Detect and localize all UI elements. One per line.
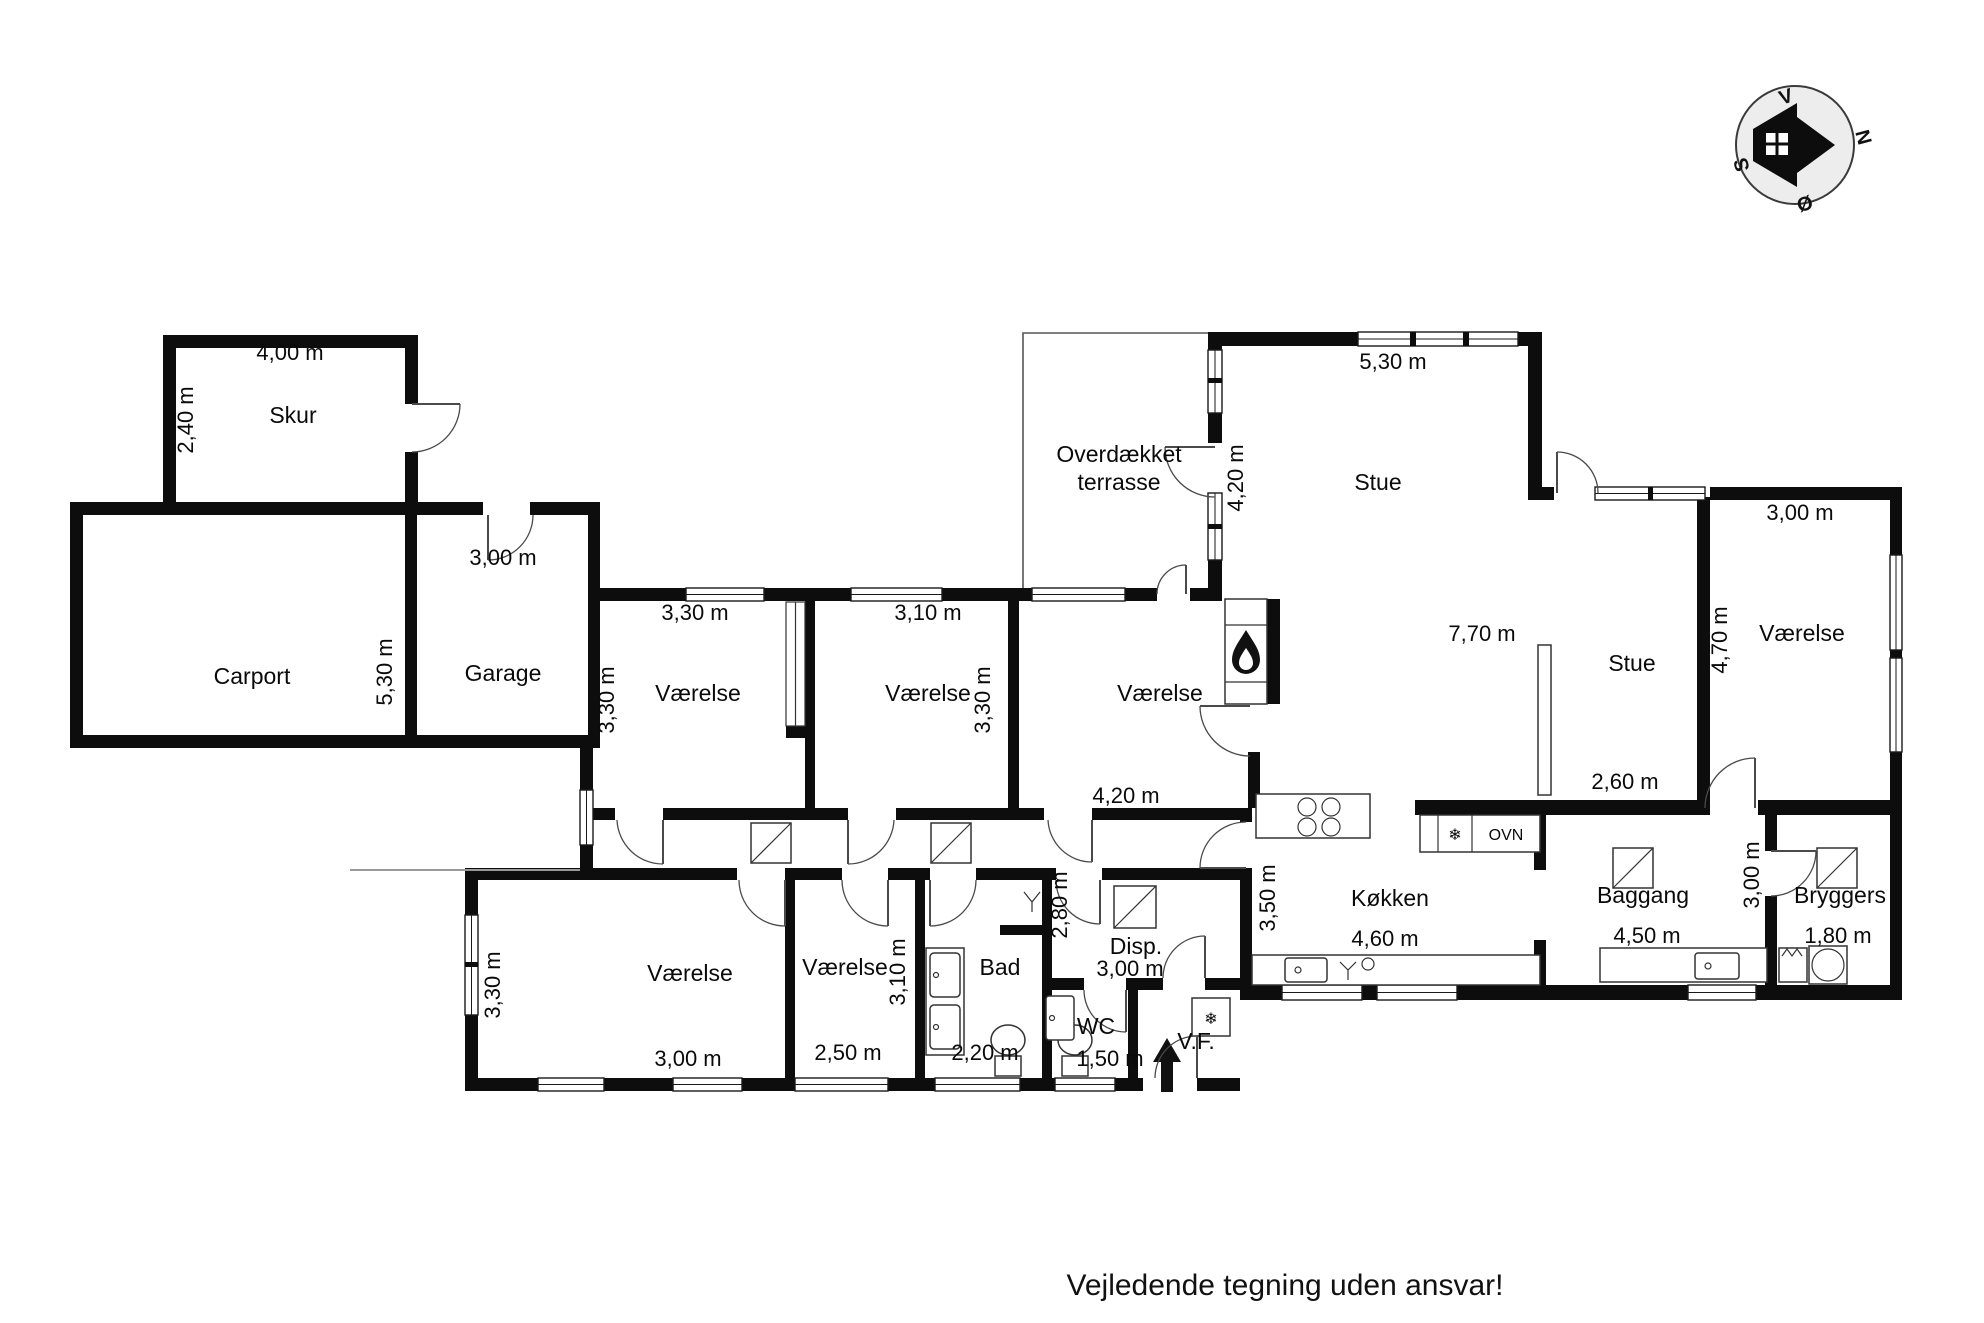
dim-vaerelse-nw-depth: 3,30 m bbox=[594, 666, 619, 733]
dim-stue-width2: 2,60 m bbox=[1591, 769, 1658, 794]
floor-plan-drawing: ❄ OVN bbox=[0, 0, 1984, 1323]
window-baggang-south bbox=[1688, 985, 1756, 1000]
dim-baggang-width: 4,50 m bbox=[1613, 923, 1680, 948]
room-label-vaerelse-sw: Værelse bbox=[647, 960, 733, 986]
dim-vaerelse-n-width: 3,10 m bbox=[894, 600, 961, 625]
room-label-vaerelse-ne: Værelse bbox=[1117, 680, 1203, 706]
dim-vaerelse-e-width: 3,00 m bbox=[1766, 500, 1833, 525]
wc-sink bbox=[1046, 996, 1074, 1040]
door-vaerelse-ne-stue bbox=[1200, 706, 1250, 756]
room-label-stue-nord: Stue bbox=[1354, 469, 1401, 495]
compass-rose: V N S Ø bbox=[1730, 85, 1875, 216]
dim-stue-nord-width: 5,30 m bbox=[1359, 349, 1426, 374]
room-label-bad: Bad bbox=[980, 954, 1021, 980]
room-label-vaerelse-s: Værelse bbox=[802, 954, 888, 980]
room-label-carport: Carport bbox=[214, 663, 291, 689]
dim-vaerelse-s-width: 2,50 m bbox=[814, 1040, 881, 1065]
dim-skur-depth: 2,40 m bbox=[173, 386, 198, 453]
room-label-stue: Stue bbox=[1608, 650, 1655, 676]
door-terrace-hall bbox=[1157, 565, 1186, 594]
room-label-bryggers: Bryggers bbox=[1794, 882, 1886, 908]
door-kitchen bbox=[1200, 822, 1246, 868]
dim-bad-width: 2,20 m bbox=[951, 1040, 1018, 1065]
dim-wc-width: 1,50 m bbox=[1076, 1046, 1143, 1071]
dim-disp-depth: 2,80 m bbox=[1047, 871, 1072, 938]
freezer-snowflake-icon: ❄ bbox=[1448, 827, 1461, 844]
disclaimer-text: Vejledende tegning uden ansvar! bbox=[1066, 1269, 1503, 1302]
room-label-skur: Skur bbox=[269, 402, 317, 428]
stue-divider bbox=[1538, 645, 1551, 795]
floor-plan-page: ❄ OVN bbox=[0, 0, 1984, 1323]
dim-vaerelse-sw-depth: 3,30 m bbox=[480, 951, 505, 1018]
dim-kokken-width: 4,60 m bbox=[1351, 926, 1418, 951]
skylight bbox=[751, 823, 791, 863]
kitchen-counter bbox=[1252, 955, 1540, 985]
door-vaerelse-east bbox=[1705, 758, 1755, 808]
room-label-vaerelse-nw: Værelse bbox=[655, 680, 741, 706]
door-vaerelse-s bbox=[842, 880, 888, 926]
laundry-tub bbox=[1779, 948, 1807, 982]
labels: 4,00 m Skur 2,40 m Carport 5,30 m 3,00 m… bbox=[173, 340, 1886, 1302]
door-vaerelse-n bbox=[848, 820, 894, 864]
skylight bbox=[1114, 886, 1156, 928]
dim-disp-width: 3,00 m bbox=[1096, 956, 1163, 981]
cooktop-counter bbox=[1256, 794, 1370, 838]
door-vf-disp bbox=[1163, 936, 1205, 978]
dim-vaerelse-sw-width: 3,00 m bbox=[654, 1046, 721, 1071]
baggang-counter bbox=[1600, 948, 1767, 982]
dim-garage-width: 3,00 m bbox=[469, 545, 536, 570]
door-stue-step bbox=[1557, 452, 1598, 493]
dim-terrasse-depth: 4,20 m bbox=[1223, 444, 1248, 511]
room-label-vaerelse-e: Værelse bbox=[1759, 620, 1845, 646]
dim-vaerelse-n-depth: 3,30 m bbox=[970, 666, 995, 733]
skylight bbox=[931, 823, 971, 863]
room-label-terrasse-1: Overdækket bbox=[1056, 441, 1182, 467]
window-stue-south-east bbox=[1595, 487, 1705, 500]
door-vaerelse-nw bbox=[617, 820, 663, 864]
floor-drain-icon bbox=[1024, 892, 1040, 912]
room-label-vaerelse-n: Værelse bbox=[885, 680, 971, 706]
dim-carport-depth: 5,30 m bbox=[372, 638, 397, 705]
dim-baggang-depth: 3,00 m bbox=[1739, 841, 1764, 908]
dim-stue-width: 7,70 m bbox=[1448, 621, 1515, 646]
dim-vaerelse-ne-width: 4,20 m bbox=[1092, 783, 1159, 808]
room-label-terrasse-2: terrasse bbox=[1077, 469, 1160, 495]
room-label-garage: Garage bbox=[465, 660, 542, 686]
room-label-kokken: Køkken bbox=[1351, 885, 1429, 911]
oven-label: OVN bbox=[1489, 827, 1524, 844]
dim-skur-width: 4,00 m bbox=[256, 340, 323, 365]
room-label-vf: V.F. bbox=[1177, 1028, 1215, 1054]
oven-freezer-cabinets: ❄ OVN bbox=[1420, 815, 1540, 852]
dim-kokken-depth: 3,50 m bbox=[1255, 864, 1280, 931]
dim-vaerelse-nw-width: 3,30 m bbox=[661, 600, 728, 625]
door-vaerelse-sw bbox=[739, 880, 785, 926]
compass-north: N bbox=[1850, 128, 1875, 148]
window-stue-terrace bbox=[1208, 350, 1222, 560]
washing-machine bbox=[1809, 946, 1847, 984]
door-bad bbox=[930, 880, 976, 926]
window-stue-north bbox=[1358, 332, 1518, 346]
door-skur bbox=[412, 404, 460, 452]
dim-vaerelse-e-depth: 4,70 m bbox=[1707, 606, 1732, 673]
room-label-wc: WC bbox=[1077, 1013, 1115, 1039]
door-vaerelse-ne bbox=[1048, 820, 1092, 862]
wardrobe-closet bbox=[786, 602, 805, 726]
bathroom-vanity bbox=[926, 948, 964, 1055]
dim-bryggers-width: 1,80 m bbox=[1804, 923, 1871, 948]
dim-vaerelse-s-depth: 3,10 m bbox=[885, 938, 910, 1005]
room-label-baggang: Baggang bbox=[1597, 882, 1689, 908]
snowflake-icon: ❄ bbox=[1204, 1011, 1217, 1028]
fireplace bbox=[1225, 599, 1267, 704]
